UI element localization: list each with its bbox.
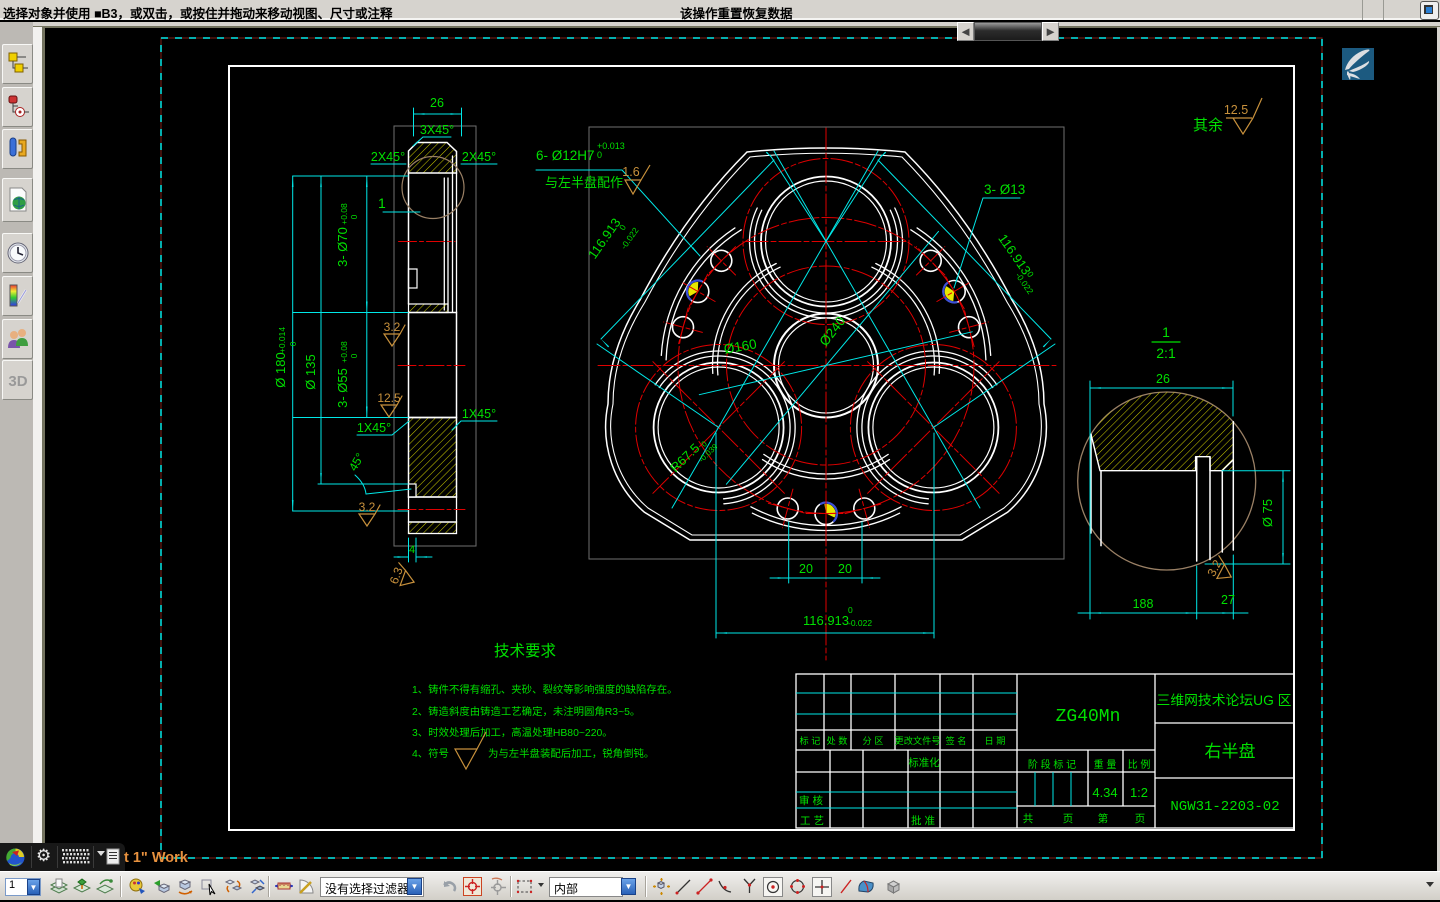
svg-text:3.2: 3.2: [384, 320, 401, 334]
svg-text:1、铸件不得有缩孔、夹砂、裂纹等影响强度的缺陷存在。: 1、铸件不得有缩孔、夹砂、裂纹等影响强度的缺陷存在。: [412, 683, 678, 696]
svg-text:签 名: 签 名: [946, 735, 967, 746]
svg-text:116.913: 116.913: [995, 231, 1034, 277]
svg-text:标准化: 标准化: [908, 756, 940, 769]
svg-text:Ø160: Ø160: [723, 336, 758, 357]
svg-text:ZG40Mn: ZG40Mn: [1056, 707, 1121, 727]
svg-text:0: 0: [349, 214, 359, 219]
svg-text:Ø240: Ø240: [816, 314, 848, 349]
svg-text:3.2: 3.2: [359, 500, 376, 514]
svg-text:标 记: 标 记: [800, 735, 821, 746]
svg-text:其余: 其余: [1193, 116, 1223, 134]
svg-text:116.913: 116.913: [803, 613, 849, 628]
svg-text:共: 共: [1023, 813, 1034, 825]
svg-text:+0.014: +0.014: [277, 327, 287, 354]
svg-text:处 数: 处 数: [827, 735, 848, 746]
svg-text:1X45°: 1X45°: [357, 421, 391, 435]
svg-text:20: 20: [799, 562, 813, 576]
svg-text:日 期: 日 期: [985, 736, 1006, 746]
svg-text:1: 1: [378, 195, 386, 211]
svg-text:3D: 3D: [8, 373, 27, 390]
svg-text:3X45°: 3X45°: [420, 123, 454, 137]
svg-text:Ø 180: Ø 180: [273, 352, 288, 387]
svg-text:26: 26: [430, 96, 444, 110]
svg-text:2X45°: 2X45°: [462, 150, 496, 164]
svg-text:审 核: 审 核: [799, 794, 823, 807]
svg-text:重 量: 重 量: [1094, 758, 1117, 771]
svg-text:6- Ø12H7: 6- Ø12H7: [536, 148, 595, 163]
svg-text:为与左半盘装配后加工，锐角倒钝。: 为与左半盘装配后加工，锐角倒钝。: [488, 747, 654, 760]
svg-text:比 例: 比 例: [1128, 758, 1151, 771]
svg-text:批 准: 批 准: [911, 814, 935, 827]
svg-text:与左半盘配作: 与左半盘配作: [545, 175, 623, 190]
svg-text:0: 0: [288, 341, 298, 346]
svg-text:188: 188: [1133, 597, 1154, 611]
svg-text:4: 4: [409, 544, 415, 556]
svg-text:12.5: 12.5: [377, 391, 401, 405]
svg-text:工 艺: 工 艺: [800, 815, 824, 827]
svg-text:116.913: 116.913: [585, 215, 624, 261]
svg-text:1.6: 1.6: [622, 165, 639, 179]
svg-text:右半盘: 右半盘: [1205, 742, 1256, 761]
svg-text:4、符号: 4、符号: [412, 747, 449, 760]
svg-text:3- Ø55: 3- Ø55: [335, 368, 350, 408]
svg-text:更改文件号: 更改文件号: [895, 735, 941, 746]
svg-text:NGW31-2203-02: NGW31-2203-02: [1170, 799, 1279, 815]
svg-text:+0.08: +0.08: [339, 203, 349, 225]
svg-text:-0.022: -0.022: [848, 618, 872, 628]
svg-text:1: 1: [1162, 324, 1170, 340]
svg-text:阶 段 标 记: 阶 段 标 记: [1028, 758, 1076, 771]
svg-text:4.34: 4.34: [1092, 785, 1117, 800]
svg-text:1X45°: 1X45°: [462, 407, 496, 421]
svg-text:3- Ø13: 3- Ø13: [984, 182, 1025, 197]
svg-text:Ø 135: Ø 135: [303, 354, 318, 389]
svg-text:3、时效处理后加工，高温处理HB80~220。: 3、时效处理后加工，高温处理HB80~220。: [412, 726, 613, 739]
svg-text:0: 0: [848, 605, 853, 615]
svg-text:3- Ø70: 3- Ø70: [335, 227, 350, 267]
svg-text:20: 20: [838, 562, 852, 576]
svg-text:2X45°: 2X45°: [371, 150, 405, 164]
svg-text:0: 0: [597, 150, 602, 160]
svg-text:1:2: 1:2: [1130, 785, 1148, 800]
svg-text:页: 页: [1063, 813, 1074, 825]
svg-text:2:1: 2:1: [1156, 345, 1176, 361]
svg-text:26: 26: [1156, 372, 1170, 386]
svg-text:+0.08: +0.08: [339, 341, 349, 363]
svg-text:分 区: 分 区: [863, 736, 884, 746]
svg-text:27: 27: [1221, 593, 1235, 607]
svg-text:页: 页: [1135, 813, 1146, 825]
svg-text:2、铸造斜度由铸造工艺确定，未注明圆角R3~5。: 2、铸造斜度由铸造工艺确定，未注明圆角R3~5。: [412, 705, 640, 718]
svg-text:45°: 45°: [346, 450, 367, 473]
svg-text:12.5: 12.5: [1224, 103, 1248, 117]
svg-text:三维网技术论坛UG 区: 三维网技术论坛UG 区: [1157, 693, 1292, 708]
svg-text:Ø 75: Ø 75: [1260, 499, 1275, 527]
svg-text:技术要求: 技术要求: [494, 642, 556, 660]
svg-text:第: 第: [1098, 812, 1109, 825]
svg-text:0: 0: [349, 353, 359, 358]
